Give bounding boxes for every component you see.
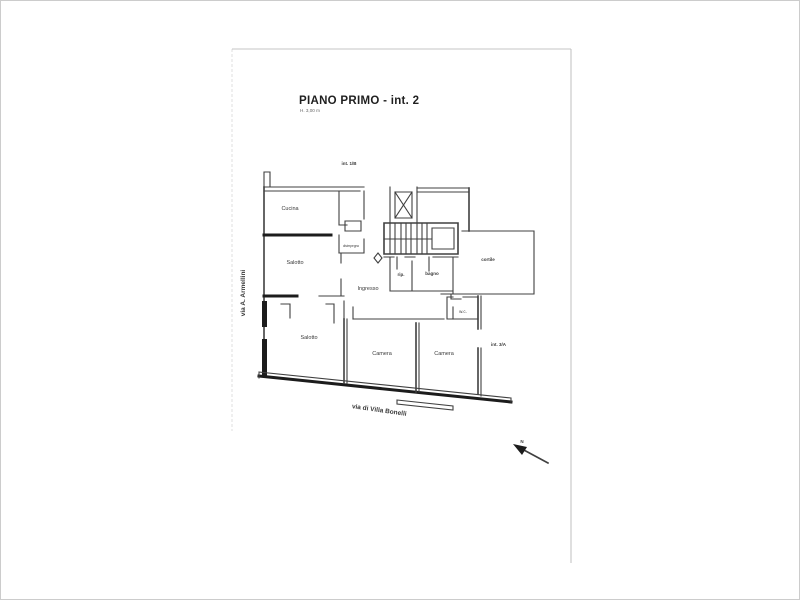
floorplan-drawing: PIANO PRIMO - int. 2 H. 3,00 m: [1, 1, 799, 599]
north-label: N: [520, 439, 523, 444]
room-label-camera-2: Camera: [434, 351, 455, 357]
unit-label-int-1b: int. 1/B: [341, 161, 357, 166]
scanned-floorplan-page: PIANO PRIMO - int. 2 H. 3,00 m: [0, 0, 800, 600]
room-label-salotto-mid: Salotto: [286, 260, 303, 266]
room-label-camera-1: Camera: [372, 351, 393, 357]
north-arrow-icon: N: [513, 439, 548, 463]
plan-title-block: PIANO PRIMO - int. 2 H. 3,00 m: [299, 95, 419, 113]
unit-label-int-3a: int. 3/A: [491, 342, 507, 347]
page-subtitle: H. 3,00 m: [300, 108, 320, 113]
room-labels: Cucina disimpegno Salotto Ingresso rip. …: [281, 206, 495, 357]
entry-door-diamond-icon: [374, 253, 382, 263]
room-label-rip: rip.: [397, 272, 404, 277]
page-title: PIANO PRIMO - int. 2: [299, 95, 419, 107]
room-label-salotto-sud: Salotto: [300, 335, 317, 341]
room-label-cucina: Cucina: [281, 206, 299, 212]
elevator-shaft-icon: [390, 187, 417, 223]
room-label-wc: w.c.: [459, 309, 467, 314]
street-label-villa-bonelli: via di Villa Bonelli: [351, 403, 407, 418]
room-label-bagno: bagno: [425, 271, 439, 276]
room-label-disimpegno: disimpegno: [343, 244, 360, 248]
room-label-cortile: cortile: [481, 257, 495, 262]
staircase: [384, 223, 458, 254]
sheet-frame: [232, 49, 571, 563]
street-label-armellini: via A. Armellini: [240, 270, 247, 317]
room-label-ingresso: Ingresso: [357, 286, 378, 292]
